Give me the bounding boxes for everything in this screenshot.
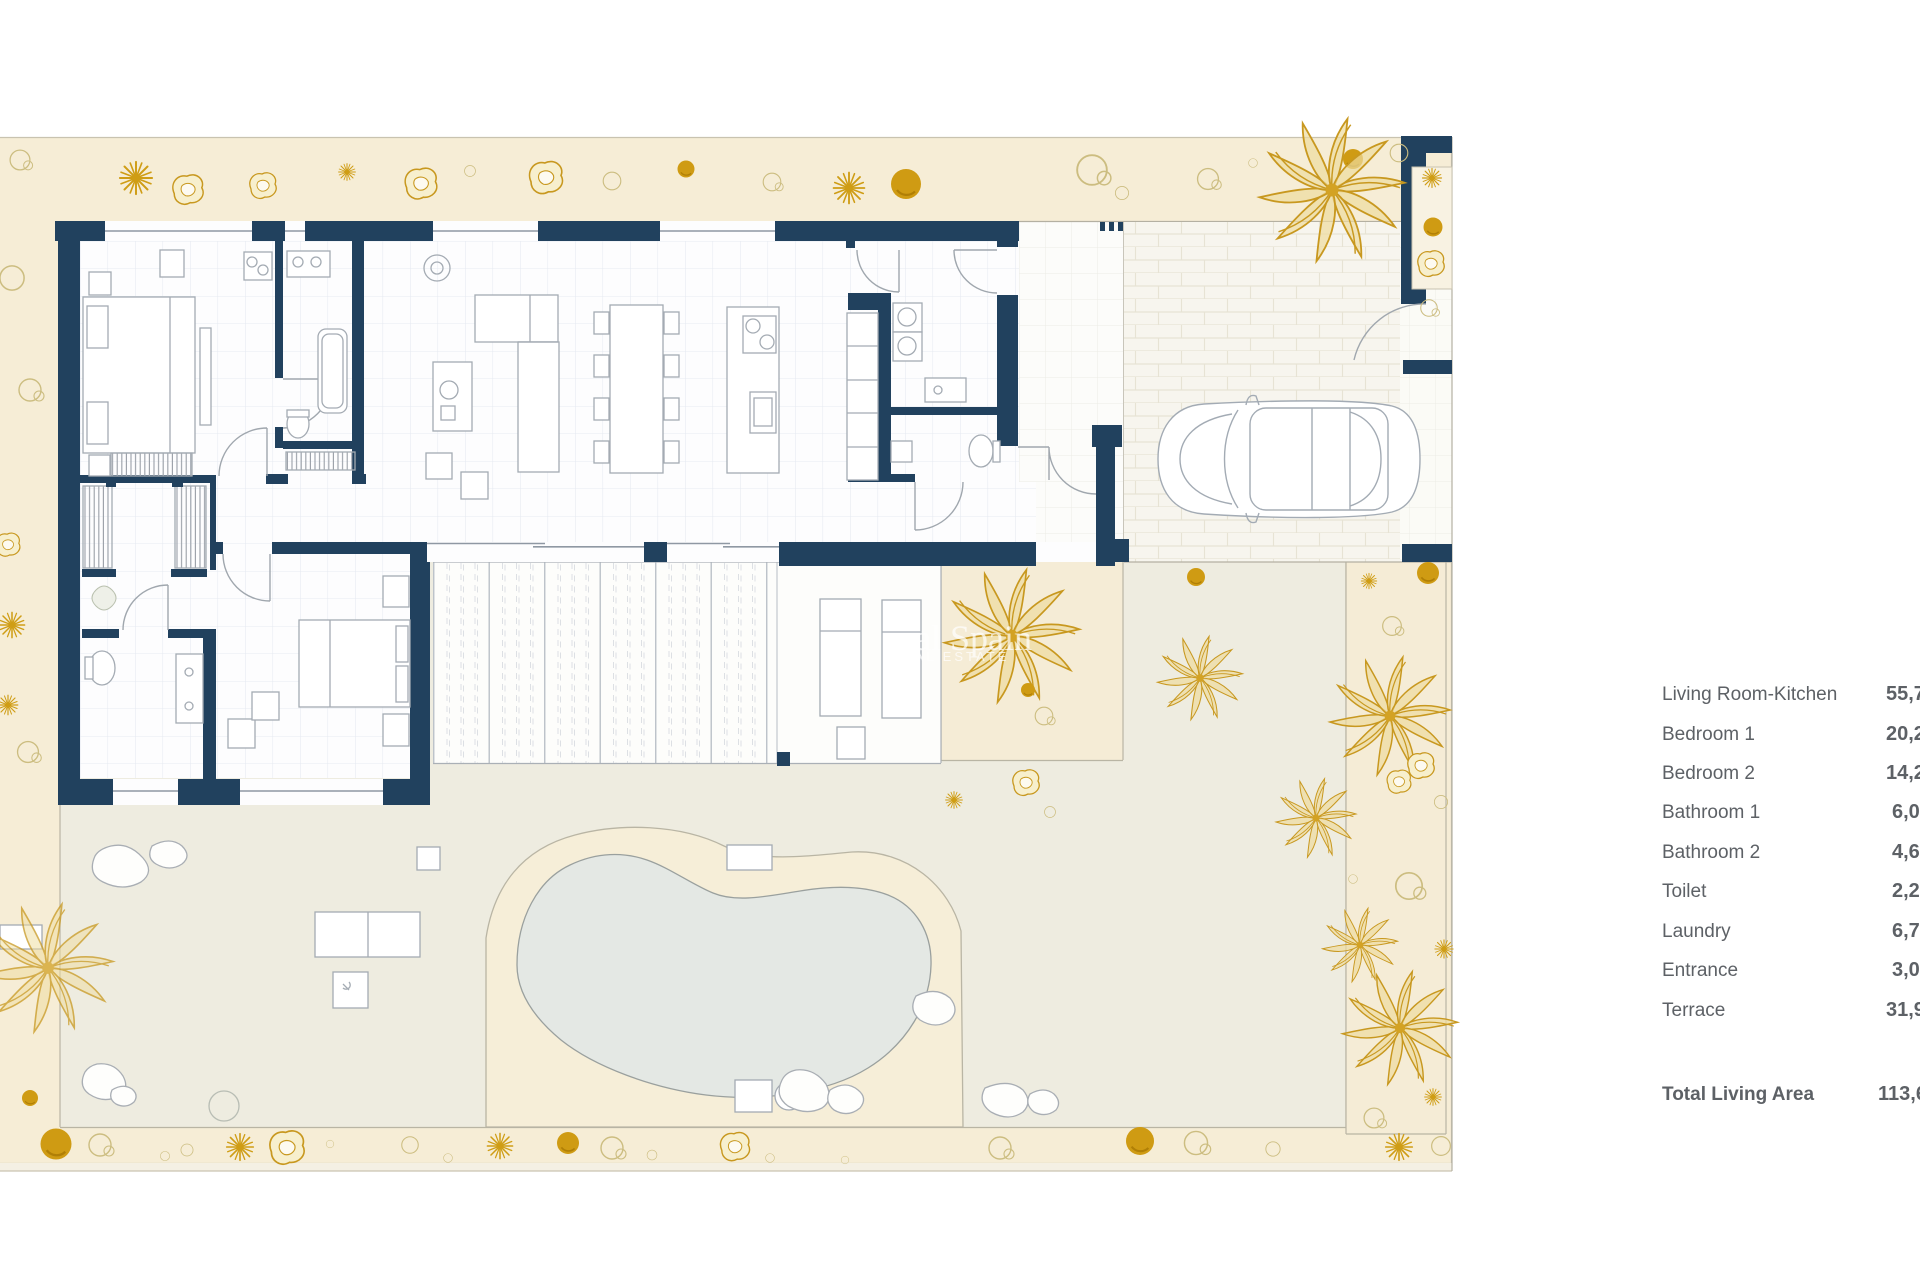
- svg-text:Bedroom 1: Bedroom 1: [1662, 724, 1755, 745]
- svg-text:14,2: 14,2: [1886, 762, 1920, 784]
- svg-text:31,9: 31,9: [1886, 999, 1920, 1021]
- svg-text:3,0: 3,0: [1892, 959, 1920, 981]
- svg-text:55,7: 55,7: [1886, 683, 1920, 705]
- svg-text:Bathroom 1: Bathroom 1: [1662, 802, 1760, 823]
- svg-text:AL ESTATE: AL ESTATE: [915, 649, 1010, 664]
- svg-text:Living Room-Kitchen: Living Room-Kitchen: [1662, 684, 1837, 705]
- svg-text:113,6: 113,6: [1878, 1083, 1920, 1105]
- svg-text:20,2: 20,2: [1886, 723, 1920, 745]
- svg-text:Toilet: Toilet: [1662, 881, 1707, 902]
- svg-text:4,6: 4,6: [1892, 841, 1920, 863]
- svg-text:Entrance: Entrance: [1662, 960, 1738, 981]
- svg-text:Bedroom 2: Bedroom 2: [1662, 763, 1755, 784]
- svg-text:Laundry: Laundry: [1662, 921, 1731, 942]
- svg-text:Terrace: Terrace: [1662, 1000, 1725, 1021]
- svg-text:Total Living Area: Total Living Area: [1662, 1084, 1814, 1105]
- svg-text:6,0: 6,0: [1892, 801, 1920, 823]
- svg-text:6,7: 6,7: [1892, 920, 1920, 942]
- svg-text:2,2: 2,2: [1892, 880, 1920, 902]
- svg-text:Bathroom 2: Bathroom 2: [1662, 842, 1760, 863]
